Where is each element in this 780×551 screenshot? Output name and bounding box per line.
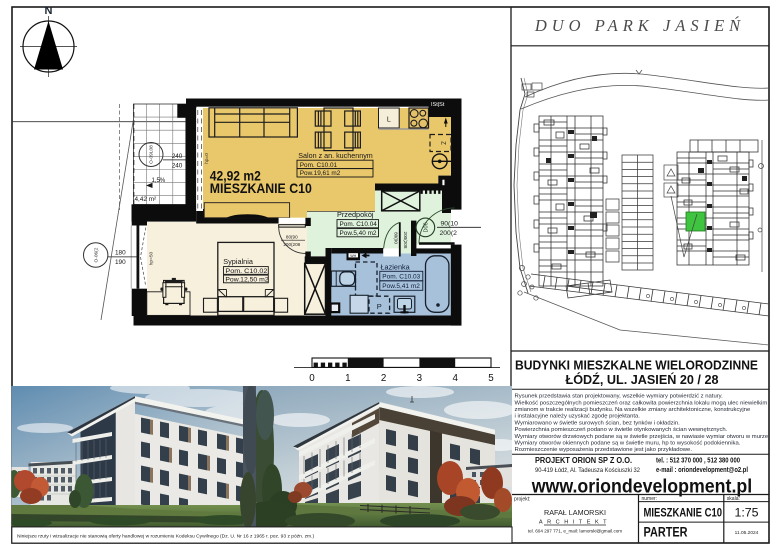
svg-text:L: L (387, 117, 391, 124)
svg-text:Pom. C10.03: Pom. C10.03 (382, 274, 420, 281)
svg-text:Przedpokój: Przedpokój (337, 210, 374, 219)
svg-text:MIESZKANIE C10: MIESZKANIE C10 (210, 181, 312, 197)
svg-text:WH: WH (350, 254, 356, 258)
svg-text:tel. 604 297 771, e_mail: tel. 604 297 771, e_mail: lamorski@gmail… (528, 529, 622, 534)
svg-text:5: 5 (488, 373, 494, 384)
svg-text:hp=0: hp=0 (204, 153, 210, 164)
svg-text:tel. : 512 370 000 , 512 380 0: tel. : 512 370 000 , 512 380 000 (656, 458, 740, 465)
svg-text:1,5%: 1,5% (152, 178, 166, 184)
svg-text:Z: Z (440, 141, 446, 145)
svg-text:N: N (45, 5, 53, 17)
svg-text:MIESZKANIE C10: MIESZKANIE C10 (644, 506, 723, 520)
svg-text:Rozmieszczenie wyposażenia prz: Rozmieszczenie wyposażenia przedstawione… (515, 447, 693, 453)
svg-text:Wymiary otworów okiennych poda: Wymiary otworów okiennych podane są w św… (515, 441, 741, 447)
svg-text:numer:: numer: (642, 496, 658, 502)
svg-text:200(208: 200(208 (283, 242, 300, 247)
svg-text:hp=50: hp=50 (149, 251, 155, 265)
svg-text:ISt|St: ISt|St (431, 102, 445, 108)
svg-text:Wielkość poszczególnych pomies: Wielkość poszczególnych pomieszczeń oraz… (515, 400, 768, 406)
svg-text:Wymiarowano w świetle surowych: Wymiarowano w świetle surowych ścian, be… (515, 420, 681, 426)
svg-text:2: 2 (381, 373, 386, 384)
svg-text:O-09L08: O-09L08 (149, 145, 155, 164)
svg-text:e-mail : oriondevelopment@o2.p: e-mail : oriondevelopment@o2.pl (656, 467, 748, 474)
svg-text:200(208: 200(208 (403, 232, 408, 249)
svg-text:Pom. C10.04: Pom. C10.04 (340, 221, 378, 228)
svg-text:200(2: 200(2 (440, 230, 458, 237)
svg-text:DUO PARK JASIEŃ: DUO PARK JASIEŃ (534, 16, 745, 35)
svg-text:190: 190 (115, 259, 126, 266)
svg-text:3: 3 (417, 373, 423, 384)
svg-text:90(10: 90(10 (441, 221, 459, 228)
svg-text:Pow.5,41 m2: Pow.5,41 m2 (382, 283, 420, 290)
svg-text:Powierzchnia pomieszczeń podan: Powierzchnia pomieszczeń podano w świetl… (515, 427, 728, 433)
svg-text:Pom. C10.02: Pom. C10.02 (225, 268, 267, 275)
svg-text:D06: D06 (423, 222, 429, 232)
svg-text:Niniejsze rzuty i wizualizacje: Niniejsze rzuty i wizualizacje nie stano… (17, 534, 314, 540)
svg-text:Pom. C10.01: Pom. C10.01 (300, 162, 338, 169)
svg-text:O-06(2: O-06(2 (93, 247, 99, 262)
svg-text:i instalacyjne należy uzyskać: i instalacyjne należy uzyskać zgodę proj… (515, 414, 641, 420)
svg-text:RAFAŁ LAMORSKI: RAFAŁ LAMORSKI (544, 508, 606, 517)
svg-text:240: 240 (172, 153, 183, 160)
svg-text:zmianom w trakcie realizacji b: zmianom w trakcie realizacji budynku. Na… (515, 407, 751, 413)
svg-text:1: 1 (345, 373, 350, 384)
svg-text:Rysunek przedstawia stan proje: Rysunek przedstawia stan projektowany, w… (515, 394, 724, 400)
svg-text:PARTER: PARTER (644, 525, 688, 540)
svg-text:BUDYNKI MIESZKALNE WIELORODZIN: BUDYNKI MIESZKALNE WIELORODZINNE (515, 359, 758, 373)
svg-text:Pow.12,50 m2: Pow.12,50 m2 (225, 276, 268, 283)
svg-text:PROJEKT ORION SP Z O.O.: PROJEKT ORION SP Z O.O. (535, 456, 632, 465)
svg-text:11.05.2024: 11.05.2024 (735, 530, 759, 536)
svg-text:Pow.5,40 m2: Pow.5,40 m2 (340, 230, 377, 237)
svg-text:skala:: skala: (727, 496, 740, 502)
svg-text:90-419 Łódź, Al. Tadeusza Kośc: 90-419 Łódź, Al. Tadeusza Kościuszki 32 (535, 467, 640, 474)
svg-text:projekt:: projekt: (514, 497, 530, 503)
svg-text:80(90: 80(90 (394, 232, 399, 244)
svg-text:4: 4 (452, 373, 458, 384)
svg-text:Sypialnia: Sypialnia (223, 257, 254, 266)
svg-text:P: P (377, 302, 382, 311)
svg-text:Salon z an. kuchennym: Salon z an. kuchennym (298, 151, 373, 160)
svg-text:Łazienka: Łazienka (381, 263, 411, 272)
svg-text:0: 0 (309, 373, 315, 384)
svg-text:180: 180 (115, 250, 126, 257)
svg-text:ŁÓDŹ, UL. JASIEŃ 20 / 28: ŁÓDŹ, UL. JASIEŃ 20 / 28 (566, 372, 719, 387)
svg-text:80(90: 80(90 (286, 234, 298, 239)
svg-text:4,42 m²: 4,42 m² (135, 196, 157, 203)
svg-text:Wymiary otworów drzwiowych pod: Wymiary otworów drzwiowych podane są w ś… (515, 434, 771, 440)
svg-text:240: 240 (172, 163, 183, 170)
svg-text:1:75: 1:75 (734, 506, 758, 520)
svg-text:Pow.19,61 m2: Pow.19,61 m2 (300, 170, 341, 177)
